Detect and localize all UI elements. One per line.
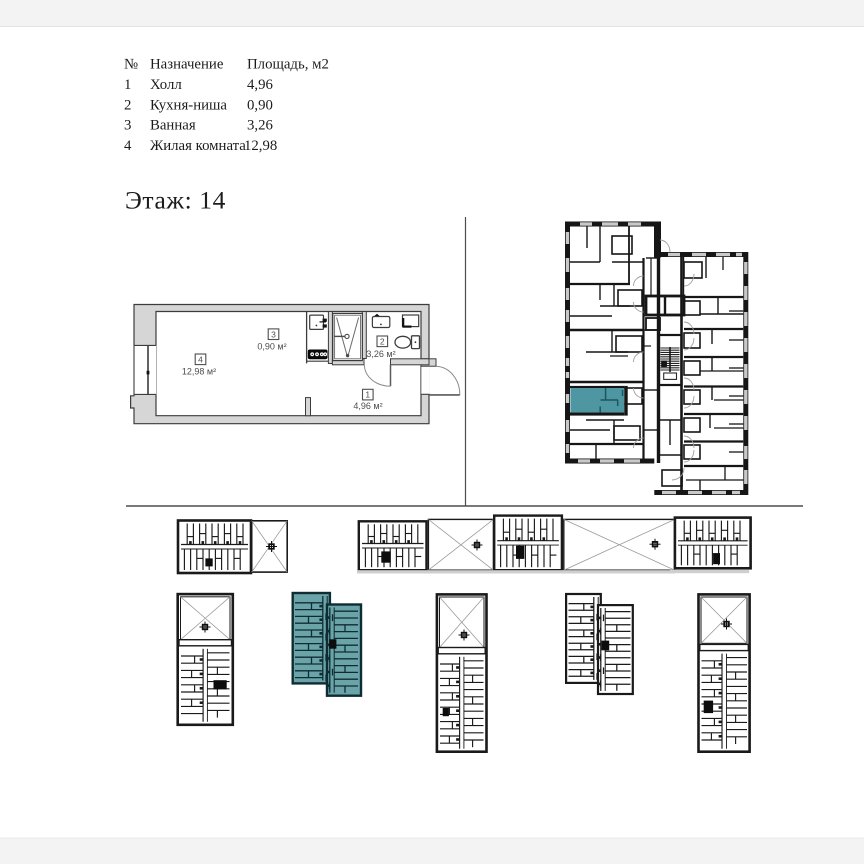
- svg-text:Кухня-ниша: Кухня-ниша: [150, 97, 227, 113]
- svg-text:4: 4: [124, 138, 132, 154]
- svg-text:0,90 м²: 0,90 м²: [257, 341, 286, 351]
- svg-text:Холл: Холл: [150, 77, 182, 93]
- svg-text:4,96: 4,96: [247, 77, 273, 93]
- svg-text:1: 1: [365, 390, 370, 400]
- svg-text:Этаж: 14: Этаж: 14: [125, 186, 226, 215]
- svg-text:Назначение: Назначение: [150, 57, 224, 73]
- svg-text:2: 2: [124, 97, 131, 113]
- svg-text:0,90: 0,90: [247, 97, 273, 113]
- svg-text:3,26 м²: 3,26 м²: [366, 349, 395, 359]
- svg-text:Жилая комната: Жилая комната: [150, 138, 246, 154]
- svg-text:Ванная: Ванная: [150, 118, 196, 134]
- svg-text:3: 3: [124, 118, 131, 134]
- svg-text:Площадь, м2: Площадь, м2: [247, 57, 329, 73]
- svg-text:4,96 м²: 4,96 м²: [353, 401, 382, 411]
- svg-text:3,26: 3,26: [247, 118, 273, 134]
- svg-text:3: 3: [271, 329, 276, 339]
- svg-text:12,98 м²: 12,98 м²: [182, 366, 216, 376]
- svg-text:12,98: 12,98: [244, 138, 277, 154]
- svg-text:2: 2: [380, 336, 385, 346]
- svg-text:№: №: [124, 57, 138, 73]
- svg-text:4: 4: [198, 354, 203, 364]
- svg-text:1: 1: [124, 77, 131, 93]
